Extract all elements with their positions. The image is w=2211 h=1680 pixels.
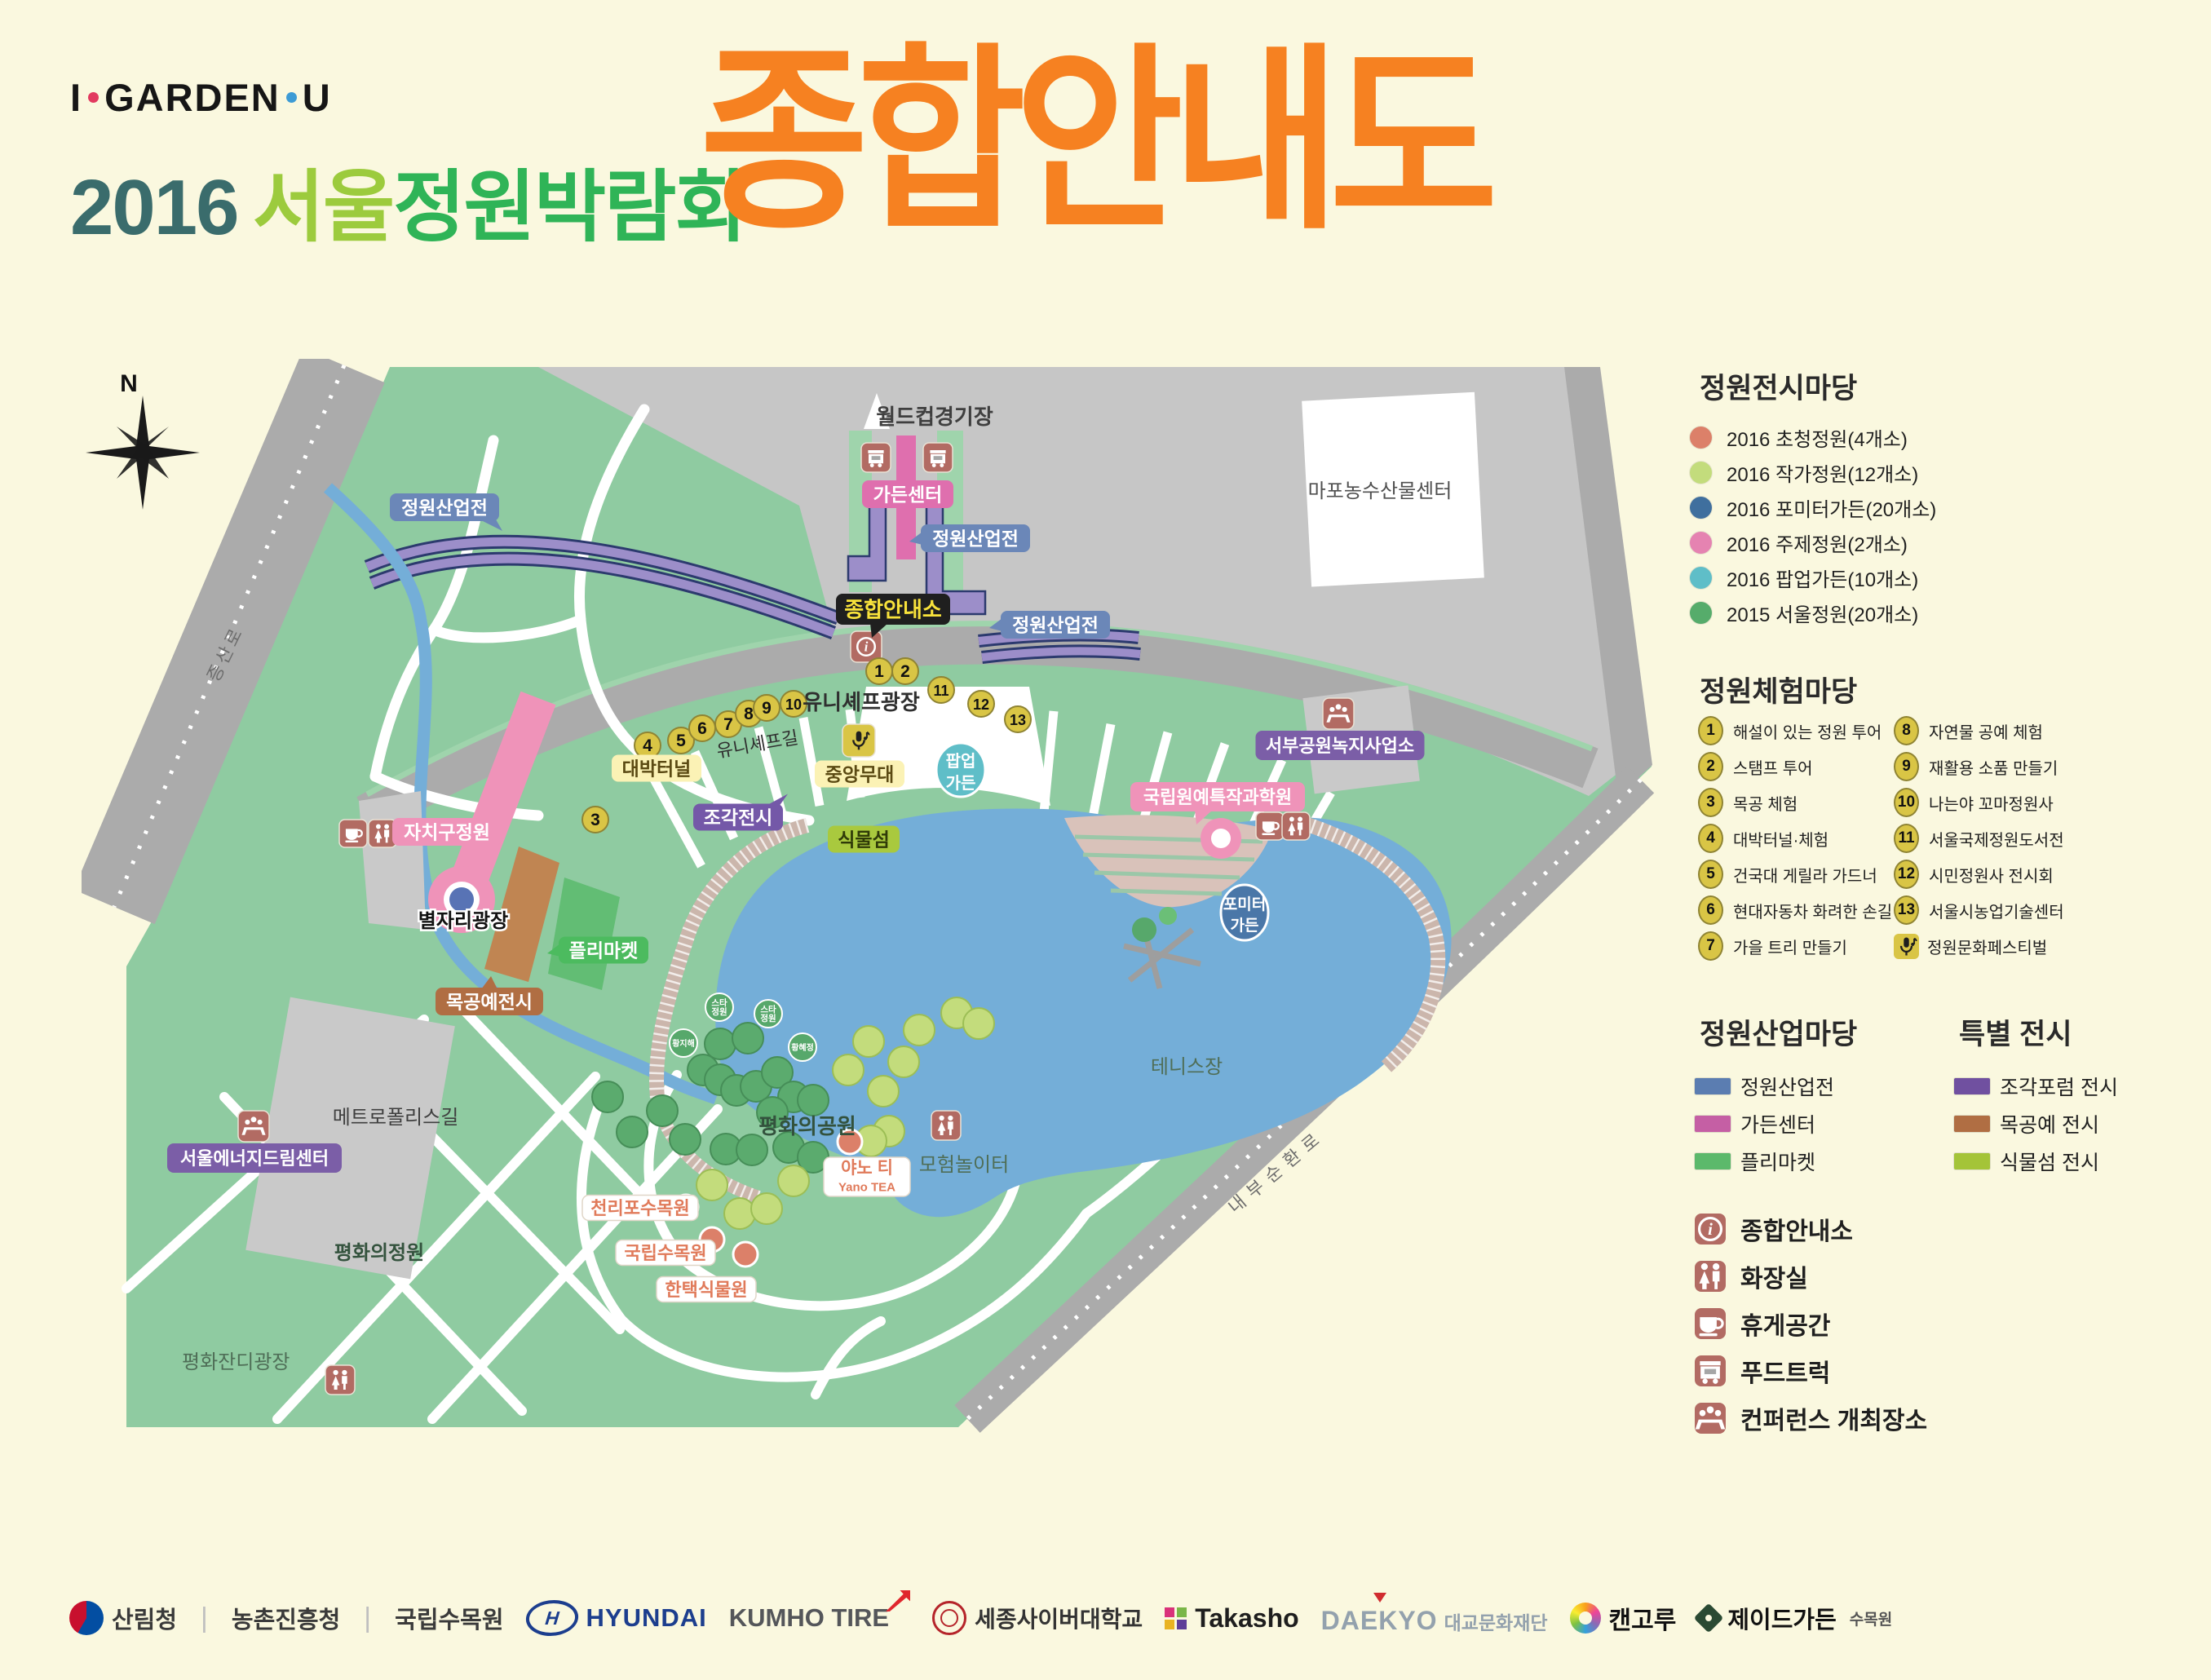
sponsor-name: 캔고루 [1609, 1600, 1677, 1636]
svg-text:정원: 정원 [760, 1013, 776, 1023]
unicef-plaza-label: 유니셰프광장 [803, 690, 920, 714]
seoul2015-garden-dot [617, 1116, 648, 1147]
hwang-hyejeong-mini-circle: 황혜정 [789, 1033, 816, 1061]
legend-color-chip [1954, 1116, 1990, 1132]
conf-icon [1695, 1403, 1726, 1434]
sponsor-HYUNDAI: HHYUNDAI [526, 1600, 707, 1636]
legend-item-label: 서울국제정원도서전 [1929, 827, 2064, 851]
kangoru-ring-icon [1570, 1603, 1601, 1634]
legend-dot-icon [1690, 427, 1712, 449]
svg-text:5: 5 [676, 732, 686, 750]
legend-color-chip [1695, 1116, 1731, 1132]
legend-special-exhibition: 특별 전시 조각포럼 전시목공예 전시식물섬 전시 [1949, 1011, 2210, 1180]
event-title: 2016서울정원박람회 [70, 144, 745, 257]
legend-color-chip [1954, 1153, 1990, 1169]
experience-marker-11: 11 [928, 677, 954, 703]
legend-item: 2016 팝업가든(10개소) [1690, 560, 2196, 595]
event-expo: 정원박람회 [393, 164, 745, 251]
toilet-icon [1282, 812, 1310, 840]
legend-item: 목공예 전시 [1949, 1105, 2210, 1143]
yano-tea-badge: 야노 티Yano TEA [824, 1157, 910, 1196]
sponsor-name: 산림청 [112, 1601, 177, 1635]
star-garden-2-mini-circle: 스타정원 [754, 1000, 782, 1028]
svg-text:i: i [865, 639, 869, 655]
legend-item: 컨퍼런스 개최장소 [1690, 1395, 2098, 1442]
legend-item: 4대박터널·체험 [1698, 820, 1892, 856]
legend-item: 정원산업전 [1690, 1068, 1951, 1105]
legend-item-label: 화장실 [1740, 1258, 1808, 1294]
legend-item: 5건국대 게릴라 가드너 [1698, 856, 1892, 892]
sponsor-separator: | [201, 1603, 208, 1634]
legend-dot-icon [1690, 602, 1712, 624]
legend-number-badge: 3 [1698, 788, 1723, 817]
svg-text:4: 4 [643, 736, 652, 755]
legend-item: 휴게공간 [1690, 1300, 2098, 1347]
sponsor-농촌진흥청: 농촌진흥청 [232, 1601, 340, 1635]
peace-garden-label: 평화의정원 [334, 1242, 424, 1264]
svg-text:Yano TEA: Yano TEA [838, 1180, 895, 1194]
compass-n-label: N [120, 370, 138, 397]
svg-text:10: 10 [785, 696, 802, 713]
mic-icon [842, 724, 875, 757]
cup-icon [1695, 1308, 1726, 1339]
legend-title: 정원산업마당 [1700, 1011, 1951, 1053]
legend-item-label: 건국대 게릴라 가드너 [1733, 863, 1877, 886]
sponsor-산림청: 산림청 [69, 1601, 177, 1635]
legend-item: 가든센터 [1690, 1105, 1951, 1143]
svg-text:8: 8 [744, 705, 754, 723]
svg-text:정원산업전: 정원산업전 [1012, 614, 1099, 635]
sponsor-name: Takasho [1195, 1603, 1298, 1634]
legend-dot-icon [1690, 462, 1712, 484]
legend-title: 정원체험마당 [1700, 669, 2196, 710]
legend-item-label: 2016 주제정원(2개소) [1727, 528, 1908, 557]
legend-item: 2016 초청정원(4개소) [1690, 420, 2196, 455]
sponsor-국립수목원: 국립수목원 [395, 1601, 503, 1635]
event-logo: I GARDEN U [70, 75, 332, 120]
legend-item-label: 2015 서울정원(20개소) [1727, 599, 1918, 627]
chollipo-arboretum-badge: 천리포수목원 [582, 1196, 698, 1221]
legend-item-label: 가을 트리 만들기 [1733, 935, 1847, 958]
festival-mic-icon [1894, 934, 1919, 959]
legend-number-badge: 13 [1894, 895, 1919, 925]
legend-item-label: 2016 포미터가든(20개소) [1727, 493, 1936, 522]
peace-lawn-label: 평화잔디광장 [182, 1351, 290, 1373]
legend-item: 플리마켓 [1690, 1143, 1951, 1180]
legend-item-label: 가든센터 [1740, 1109, 1815, 1138]
writer-garden-dot [853, 1026, 884, 1057]
sponsor-subname: 대교문화재단 [1444, 1612, 1548, 1634]
experience-marker-12: 12 [968, 691, 994, 717]
legend-item-label: 시민정원사 전시회 [1929, 863, 2054, 886]
svg-text:정원산업전: 정원산업전 [932, 528, 1019, 549]
legend-facilities: i종합안내소화장실휴게공간푸드트럭컨퍼런스 개최장소 [1690, 1205, 2098, 1442]
legend-item: 2스탬프 투어 [1698, 749, 1892, 785]
toilet-icon [369, 820, 396, 847]
seoul2015-garden-dot [736, 1134, 767, 1165]
energy-dream-center-badge: 서울에너지드림센터 [167, 1143, 342, 1173]
svg-text:국립원예특작과학원: 국립원예특작과학원 [1143, 787, 1292, 807]
worldcup-label: 월드컵경기장 [876, 405, 993, 429]
hyundai-logo-icon: H [524, 1600, 580, 1636]
sponsor-제이드가든: 제이드가든수목원 [1698, 1601, 1892, 1635]
industry-expo-mid-badge: 정원산업전 [909, 524, 1030, 552]
svg-text:팝업: 팝업 [946, 752, 976, 771]
legend-item-label: 2016 팝업가든(10개소) [1727, 564, 1918, 592]
legend-item: 1해설이 있는 정원 투어 [1698, 713, 1892, 749]
hantaek-garden-badge: 한택식물원 [657, 1277, 756, 1302]
national-arboretum-badge: 국립수목원 [616, 1240, 715, 1266]
sponsor-name: 제이드가든 [1727, 1601, 1836, 1635]
seoul2015-garden-dot [647, 1095, 678, 1126]
legend-color-chip [1695, 1153, 1731, 1169]
legend-item-label: 2016 초청정원(4개소) [1727, 423, 1908, 452]
writer-garden-dot [904, 1015, 935, 1046]
kumho-logo: KUMHO TIRE [729, 1603, 910, 1633]
writer-garden-dot [868, 1076, 899, 1107]
star-garden-1-mini-circle: 스타정원 [705, 993, 733, 1021]
svg-text:자치구정원: 자치구정원 [404, 821, 490, 842]
legend-item: i종합안내소 [1690, 1205, 2098, 1253]
legend-item-label: 스탬프 투어 [1733, 755, 1813, 779]
popup-garden-badge: 팝업가든 [936, 743, 985, 797]
sponsor-Takasho: Takasho [1165, 1603, 1298, 1634]
legend-title: 특별 전시 [1959, 1011, 2210, 1053]
svg-text:포미터: 포미터 [1223, 895, 1266, 913]
daebak-tunnel-badge: 대박터널 [612, 755, 701, 782]
legend-item: 조각포럼 전시 [1949, 1068, 2210, 1105]
legend-number-badge: 4 [1698, 824, 1723, 853]
writer-garden-dot [888, 1046, 919, 1077]
four-meter-garden-badge: 포미터가든 [1221, 885, 1268, 940]
sponsor-separator: | [364, 1603, 371, 1634]
legend-item-label: 정원산업전 [1740, 1072, 1834, 1101]
sponsor-row: 산림청|농촌진흥청|국립수목원HHYUNDAIKUMHO TIRE세종사이버대학… [69, 1581, 2157, 1656]
svg-text:7: 7 [723, 715, 733, 734]
legend-item-label: 조각포럼 전시 [2000, 1072, 2118, 1101]
garden-center-badge: 가든센터 [862, 480, 953, 508]
svg-text:대박터널: 대박터널 [622, 758, 692, 779]
sponsor-name: KUMHO TIRE [729, 1603, 889, 1632]
svg-text:한택식물원: 한택식물원 [665, 1280, 747, 1300]
conf-icon [1323, 698, 1354, 729]
svg-text:정원산업전: 정원산업전 [401, 497, 488, 518]
legend-garden-exhibition: 정원전시마당 2016 초청정원(4개소)2016 작가정원(12개소)2016… [1690, 365, 2196, 630]
sponsor-subname: 수목원 [1850, 1607, 1892, 1629]
legend-number-badge: 8 [1894, 716, 1919, 745]
legend-item-label: 휴게공간 [1740, 1306, 1830, 1342]
conf-icon [238, 1111, 269, 1142]
legend-item-label: 재활용 소품 만들기 [1929, 755, 2058, 779]
legend-dot-icon [1690, 497, 1712, 519]
deck-tree [1159, 907, 1177, 925]
svg-text:중앙무대: 중앙무대 [825, 763, 895, 785]
legend-item: 2016 주제정원(2개소) [1690, 525, 2196, 560]
svg-text:3: 3 [590, 811, 600, 829]
logo-blue-dot-icon [286, 92, 297, 103]
legend-item: 11서울국제정원도서전 [1894, 820, 2064, 856]
svg-text:1: 1 [874, 662, 884, 681]
seoul2015-garden-dot [670, 1124, 701, 1155]
byeoljari-plaza-label: 별자리광장 [418, 910, 508, 932]
toilet-icon [931, 1111, 961, 1140]
legend-item: 3목공 체험 [1698, 785, 1892, 820]
legend-item-label: 식물섬 전시 [2000, 1147, 2099, 1176]
svg-text:13: 13 [1010, 712, 1026, 728]
experience-marker-2: 2 [892, 658, 918, 684]
legend-item: 푸드트럭 [1690, 1347, 2098, 1395]
adventure-playground-label: 모험놀이터 [919, 1154, 1009, 1176]
daekyo-bird-icon [1373, 1593, 1386, 1603]
legend-garden-industry: 정원산업마당 정원산업전가든센터플리마켓 [1690, 1011, 1951, 1180]
legend-number-badge: 11 [1894, 824, 1919, 853]
experience-marker-13: 13 [1005, 706, 1031, 732]
jade-garden-emblem-icon [1694, 1603, 1724, 1634]
svg-text:9: 9 [762, 699, 772, 718]
svg-text:야노 티: 야노 티 [841, 1159, 893, 1178]
takasho-squares-icon [1165, 1607, 1187, 1629]
writer-garden-dot [778, 1165, 809, 1196]
legend-number-badge: 12 [1894, 860, 1919, 889]
truck-icon [1695, 1355, 1726, 1386]
svg-text:황지해: 황지해 [672, 1038, 695, 1049]
park-map-svg: 스타정원스타정원황지해황혜정i12345678910111213N월드컵경기장마… [82, 359, 1713, 1435]
deck-tree [1132, 917, 1156, 942]
sponsor-캔고루: 캔고루 [1570, 1600, 1677, 1636]
event-year: 2016 [70, 164, 238, 251]
writer-garden-dot [724, 1198, 755, 1229]
logo-u: U [303, 75, 332, 120]
legend-number-badge: 2 [1698, 752, 1723, 781]
legend-item: 8자연물 공예 체험 [1894, 713, 2064, 749]
svg-text:천리포수목원: 천리포수목원 [590, 1198, 689, 1218]
district-garden-badge: 자치구정원 [392, 818, 502, 846]
svg-text:6: 6 [697, 719, 707, 738]
legend-item-label: 2016 작가정원(12개소) [1727, 458, 1918, 487]
logo-garden: GARDEN [104, 75, 281, 120]
svg-text:목공예전시: 목공예전시 [446, 991, 533, 1012]
sejong-seal-icon [932, 1601, 966, 1635]
legend-item-label: 대박터널·체험 [1733, 827, 1828, 851]
invited-garden-dot [733, 1242, 758, 1267]
svg-text:종합안내소: 종합안내소 [844, 597, 942, 621]
legend-item-label: 플리마켓 [1740, 1147, 1815, 1176]
compass-icon [86, 396, 200, 510]
legend-item: 12시민정원사 전시회 [1894, 856, 2064, 892]
legend-number-badge: 1 [1698, 716, 1723, 745]
event-city: 서울 [253, 164, 394, 251]
truck-icon [923, 443, 953, 472]
svg-text:정원: 정원 [711, 1006, 727, 1017]
svg-text:i: i [1708, 1221, 1713, 1239]
legend-item: 9재활용 소품 만들기 [1894, 749, 2064, 785]
legend-number-badge: 9 [1894, 752, 1919, 781]
info-icon: i [1695, 1214, 1726, 1245]
flea-market-badge: 플리마켓 [547, 937, 648, 964]
legend-number-badge: 5 [1698, 860, 1723, 889]
legend-item-label: 나는야 꼬마정원사 [1929, 791, 2054, 815]
legend-item-label: 목공 체험 [1733, 791, 1798, 815]
experience-marker-3: 3 [582, 807, 608, 833]
svg-text:식물섬: 식물섬 [838, 829, 889, 850]
legend-number-badge: 10 [1894, 788, 1919, 817]
writer-garden-dot [833, 1054, 864, 1085]
legend-item: 13서울시농업기술센터 [1894, 892, 2064, 928]
district-building [359, 791, 426, 930]
sponsor-DAEKYO: DAEKYO대교문화재단 [1321, 1601, 1548, 1636]
korea-gov-emblem-icon [69, 1601, 104, 1635]
svg-text:국립수목원: 국립수목원 [624, 1243, 706, 1263]
legend-item: 7가을 트리 만들기 [1698, 928, 1892, 964]
legend-item: 6현대자동차 화려한 손길 [1698, 892, 1892, 928]
mapo-center-label: 마포농수산물센터 [1308, 480, 1453, 502]
svg-text:12: 12 [973, 696, 989, 713]
legend-item: 10나는야 꼬마정원사 [1894, 785, 2064, 820]
sponsor-name: DAEKYO [1321, 1606, 1438, 1635]
writer-garden-dot [963, 1008, 994, 1039]
legend-item: 식물섬 전시 [1949, 1143, 2210, 1180]
toilet-icon [1695, 1261, 1726, 1292]
sponsor-KUMHO TIRE: KUMHO TIRE [729, 1603, 910, 1633]
svg-text:서울에너지드림센터: 서울에너지드림센터 [180, 1148, 329, 1169]
writer-garden-dot [751, 1193, 782, 1224]
legend-item: 정원문화페스티벌 [1894, 928, 2064, 964]
industry-expo-right-badge: 정원산업전 [989, 611, 1110, 639]
writer-garden-dot [696, 1169, 727, 1200]
svg-text:서부공원녹지사업소: 서부공원녹지사업소 [1266, 736, 1414, 756]
truck-icon [861, 443, 891, 472]
legend-item: 2015 서울정원(20개소) [1690, 595, 2196, 630]
svg-text:11: 11 [933, 683, 949, 699]
experience-marker-9: 9 [754, 695, 780, 721]
cup-icon [1256, 812, 1284, 840]
svg-text:조각전시: 조각전시 [704, 807, 773, 828]
legend-item-label: 현대자동차 화려한 손길 [1733, 899, 1892, 922]
toilet-icon [325, 1365, 355, 1395]
sponsor-name: HYUNDAI [586, 1603, 707, 1633]
seoul2015-garden-dot [592, 1081, 623, 1112]
logo-i: I [70, 75, 82, 120]
horticulture-donut [1201, 818, 1241, 859]
legend-item-label: 목공예 전시 [2000, 1109, 2099, 1138]
legend-color-chip [1954, 1078, 1990, 1094]
logo-red-dot-icon [88, 92, 99, 103]
legend-item: 2016 포미터가든(20개소) [1690, 490, 2196, 525]
svg-text:가든센터: 가든센터 [873, 484, 943, 505]
legend-color-chip [1695, 1078, 1731, 1094]
svg-text:황혜정: 황혜정 [791, 1042, 814, 1053]
legend-item-label: 서울시농업기술센터 [1929, 899, 2064, 922]
legend-number-badge: 7 [1698, 931, 1723, 961]
experience-marker-4: 4 [635, 732, 661, 758]
legend-item: 2016 작가정원(12개소) [1690, 455, 2196, 490]
legend-dot-icon [1690, 567, 1712, 589]
legend-number-badge: 6 [1698, 895, 1723, 925]
sponsor-name: 세종사이버대학교 [975, 1602, 1143, 1634]
legend-item-label: 컨퍼런스 개최장소 [1740, 1400, 1927, 1436]
svg-text:2: 2 [900, 662, 910, 681]
page-title: 종합안내도 [700, 33, 1487, 250]
peace-park-label: 평화의공원 [758, 1114, 856, 1138]
sponsor-세종사이버대학교: 세종사이버대학교 [932, 1601, 1143, 1635]
legend-item-label: 해설이 있는 정원 투어 [1733, 719, 1882, 743]
kumho-arrow-icon [886, 1590, 910, 1611]
daekyo-logo: DAEKYO대교문화재단 [1321, 1601, 1548, 1636]
svg-text:가든: 가든 [946, 774, 976, 793]
svg-text:플리마켓: 플리마켓 [569, 939, 639, 961]
cup-icon [339, 820, 367, 847]
metropolis-road-label: 메트로폴리스길 [333, 1107, 459, 1129]
seoul2015-garden-dot [798, 1085, 829, 1116]
legend-item-label: 종합안내소 [1740, 1211, 1853, 1247]
legend-item: 화장실 [1690, 1253, 2098, 1300]
park-map: 스타정원스타정원황지해황혜정i12345678910111213N월드컵경기장마… [82, 359, 1713, 1435]
svg-text:가든: 가든 [1231, 917, 1259, 935]
legend-item-label: 자연물 공예 체험 [1929, 719, 2043, 743]
legend-item-label: 정원문화페스티벌 [1927, 935, 2047, 958]
main-stage-badge: 중앙무대 [815, 761, 904, 788]
west-park-office-badge: 서부공원녹지사업소 [1256, 731, 1425, 760]
experience-marker-6: 6 [689, 715, 715, 741]
hwang-jihae-mini-circle: 황지해 [670, 1029, 697, 1057]
legend-item-label: 푸드트럭 [1740, 1353, 1830, 1389]
experience-marker-1: 1 [866, 658, 892, 684]
plant-island-badge: 식물섬 [828, 826, 900, 853]
legend-title: 정원전시마당 [1700, 365, 2196, 407]
seoul2015-garden-dot [732, 1023, 763, 1054]
legend-dot-icon [1690, 532, 1712, 554]
sponsor-name: 국립수목원 [395, 1601, 503, 1635]
poster: I GARDEN U 2016서울정원박람회 종합안내도 [0, 0, 2211, 1680]
sponsor-name: 농촌진흥청 [232, 1601, 340, 1635]
tennis-court-label: 테니스장 [1151, 1056, 1223, 1078]
seoul2015-garden-dot [705, 1028, 736, 1059]
